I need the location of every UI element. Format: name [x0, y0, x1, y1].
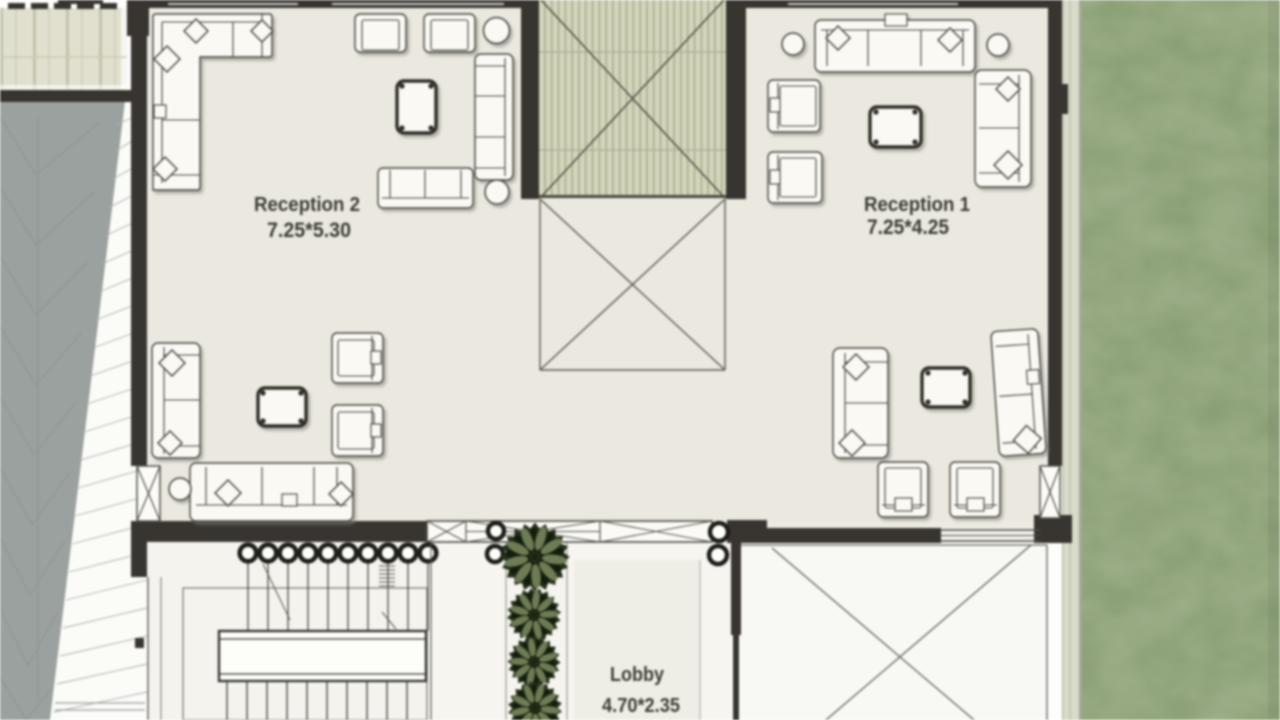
svg-text:Reception 1: Reception 1 — [864, 194, 970, 216]
svg-text:7.25*5.30: 7.25*5.30 — [267, 219, 351, 242]
svg-text:7.25*4.25: 7.25*4.25 — [867, 216, 949, 239]
svg-text:Reception 2: Reception 2 — [254, 194, 360, 216]
svg-text:4.70*2.35: 4.70*2.35 — [602, 695, 680, 717]
svg-text:Lobby: Lobby — [610, 664, 665, 686]
